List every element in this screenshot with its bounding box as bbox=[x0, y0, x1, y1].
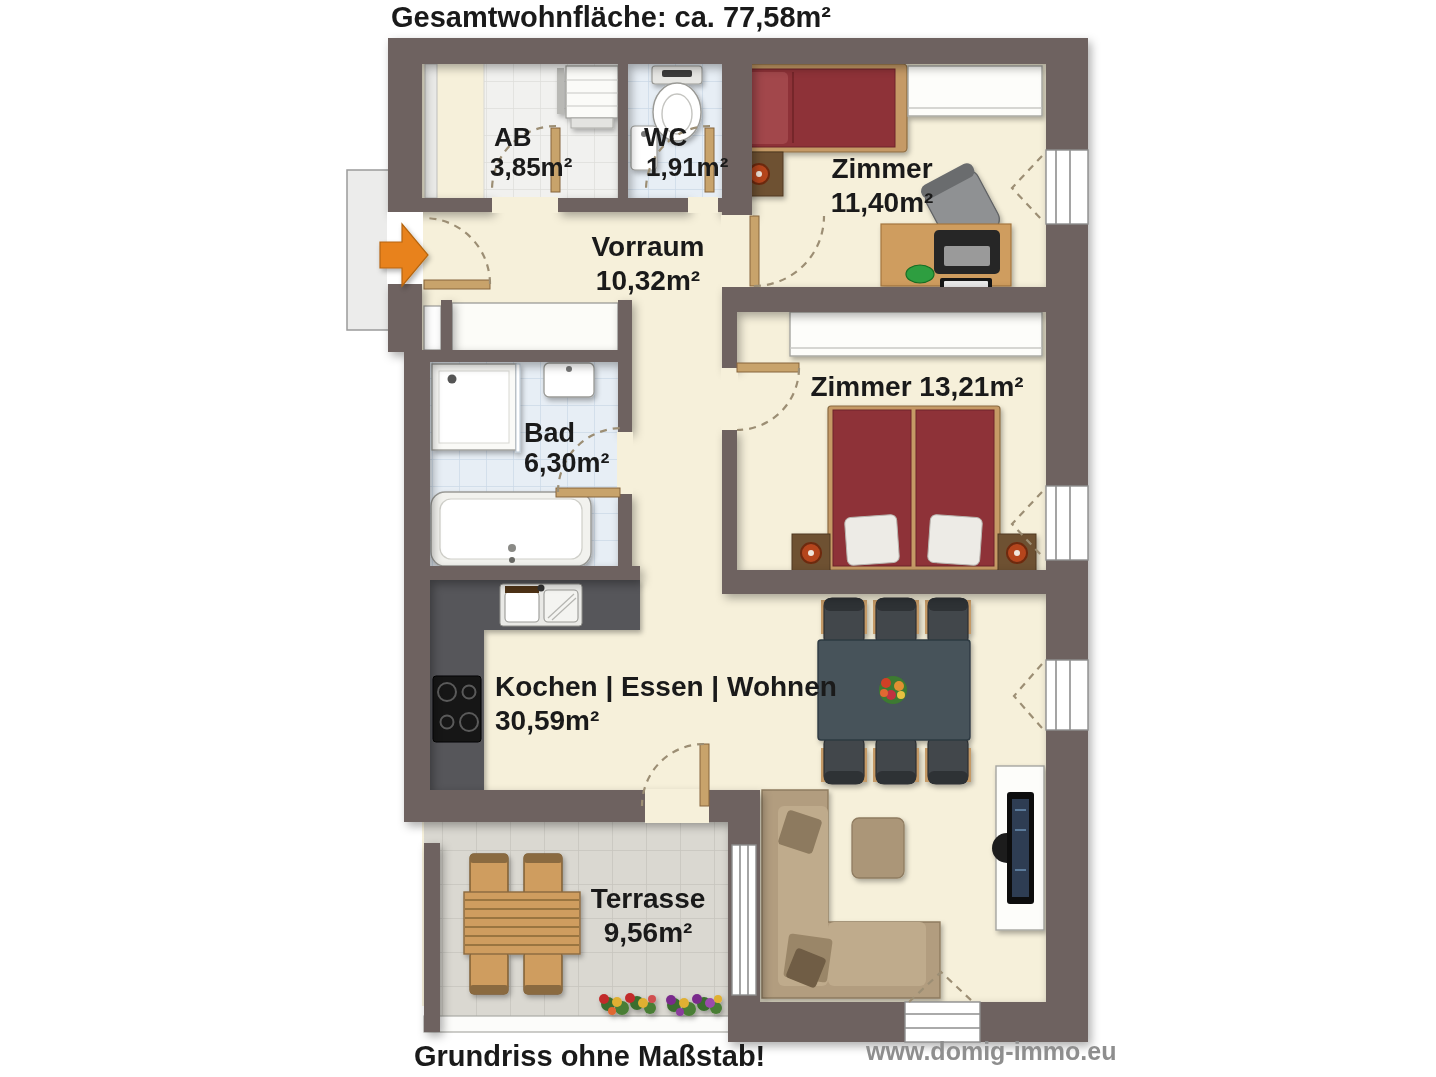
label-ab-area: 3,85m² bbox=[490, 152, 573, 182]
label-wohnbereich-name: Kochen | Essen | Wohnen bbox=[495, 671, 837, 702]
ottoman-symbol bbox=[852, 818, 904, 878]
dining-chair-symbol bbox=[925, 598, 971, 646]
dining-chair-symbol bbox=[925, 736, 971, 784]
label-wc-name: WC bbox=[644, 122, 688, 152]
label-terrasse-area: 9,56m² bbox=[604, 917, 693, 948]
label-terrasse-name: Terrasse bbox=[591, 883, 706, 914]
terrace-chair-symbol bbox=[470, 952, 508, 994]
dining-table-symbol bbox=[818, 640, 970, 740]
nightstand-symbol bbox=[792, 534, 830, 572]
floor-plan: Gesamtwohnfläche: ca. 77,58m² AB 3,85m² … bbox=[0, 0, 1436, 1077]
label-vorraum-name: Vorraum bbox=[591, 231, 704, 262]
zimmer-klein-door-leaf bbox=[750, 216, 759, 286]
terrace-chair-symbol bbox=[524, 952, 562, 994]
label-wohnbereich-area: 30,59m² bbox=[495, 705, 599, 736]
kitchen-sink-symbol bbox=[500, 584, 582, 626]
wardrobe-symbol bbox=[908, 66, 1042, 116]
footer-disclaimer: Grundriss ohne Maßstab! bbox=[414, 1040, 765, 1072]
label-zimmer-klein-area: 11,40m² bbox=[831, 187, 934, 218]
cooktop-symbol bbox=[433, 676, 481, 742]
dining-chair-symbol bbox=[873, 598, 919, 646]
zimmer-gross-door-leaf bbox=[737, 363, 799, 372]
window-zimmer-klein bbox=[1046, 150, 1088, 224]
dining-chair-symbol bbox=[821, 598, 867, 646]
label-bad-area: 6,30m² bbox=[524, 448, 610, 478]
label-zimmer-gross: Zimmer 13,21m² bbox=[810, 371, 1023, 402]
single-bed-symbol bbox=[733, 64, 907, 152]
label-bad-name: Bad bbox=[524, 418, 575, 448]
wardrobe-symbol bbox=[790, 312, 1042, 356]
dining-chair-symbol bbox=[821, 736, 867, 784]
bathroom-sink-symbol bbox=[544, 363, 594, 397]
floorplan-page: Gesamtwohnfläche: ca. 77,58m² AB 3,85m² … bbox=[0, 0, 1436, 1077]
bathtub-symbol bbox=[431, 492, 591, 566]
terrace-chair-symbol bbox=[470, 854, 508, 896]
tv-sideboard-symbol bbox=[992, 766, 1044, 930]
terrasse-door-leaf bbox=[700, 744, 709, 806]
bad-door-leaf bbox=[556, 488, 620, 497]
label-vorraum-area: 10,32m² bbox=[596, 265, 700, 296]
vorraum-closet-niche bbox=[424, 303, 618, 351]
shower-symbol bbox=[432, 364, 520, 452]
window-essbereich bbox=[1046, 660, 1088, 730]
footer-watermark: www.domig-immo.eu bbox=[865, 1037, 1116, 1065]
entrance-door-leaf bbox=[424, 280, 490, 289]
terrace-table-symbol bbox=[464, 892, 580, 954]
page-title: Gesamtwohnfläche: ca. 77,58m² bbox=[391, 1, 831, 33]
desk-symbol bbox=[881, 224, 1011, 291]
window-zimmer-gross bbox=[1046, 486, 1088, 560]
label-ab-name: AB bbox=[494, 122, 532, 152]
label-wc-area: 1,91m² bbox=[646, 152, 729, 182]
dining-chair-symbol bbox=[873, 736, 919, 784]
window-terrasse-tuer bbox=[732, 845, 756, 995]
double-bed-symbol bbox=[828, 406, 1000, 570]
terrace-chair-symbol bbox=[524, 854, 562, 896]
window-wohnzimmer-sued bbox=[905, 1002, 980, 1042]
nightstand-symbol bbox=[998, 534, 1036, 572]
label-zimmer-klein-name: Zimmer bbox=[831, 153, 932, 184]
